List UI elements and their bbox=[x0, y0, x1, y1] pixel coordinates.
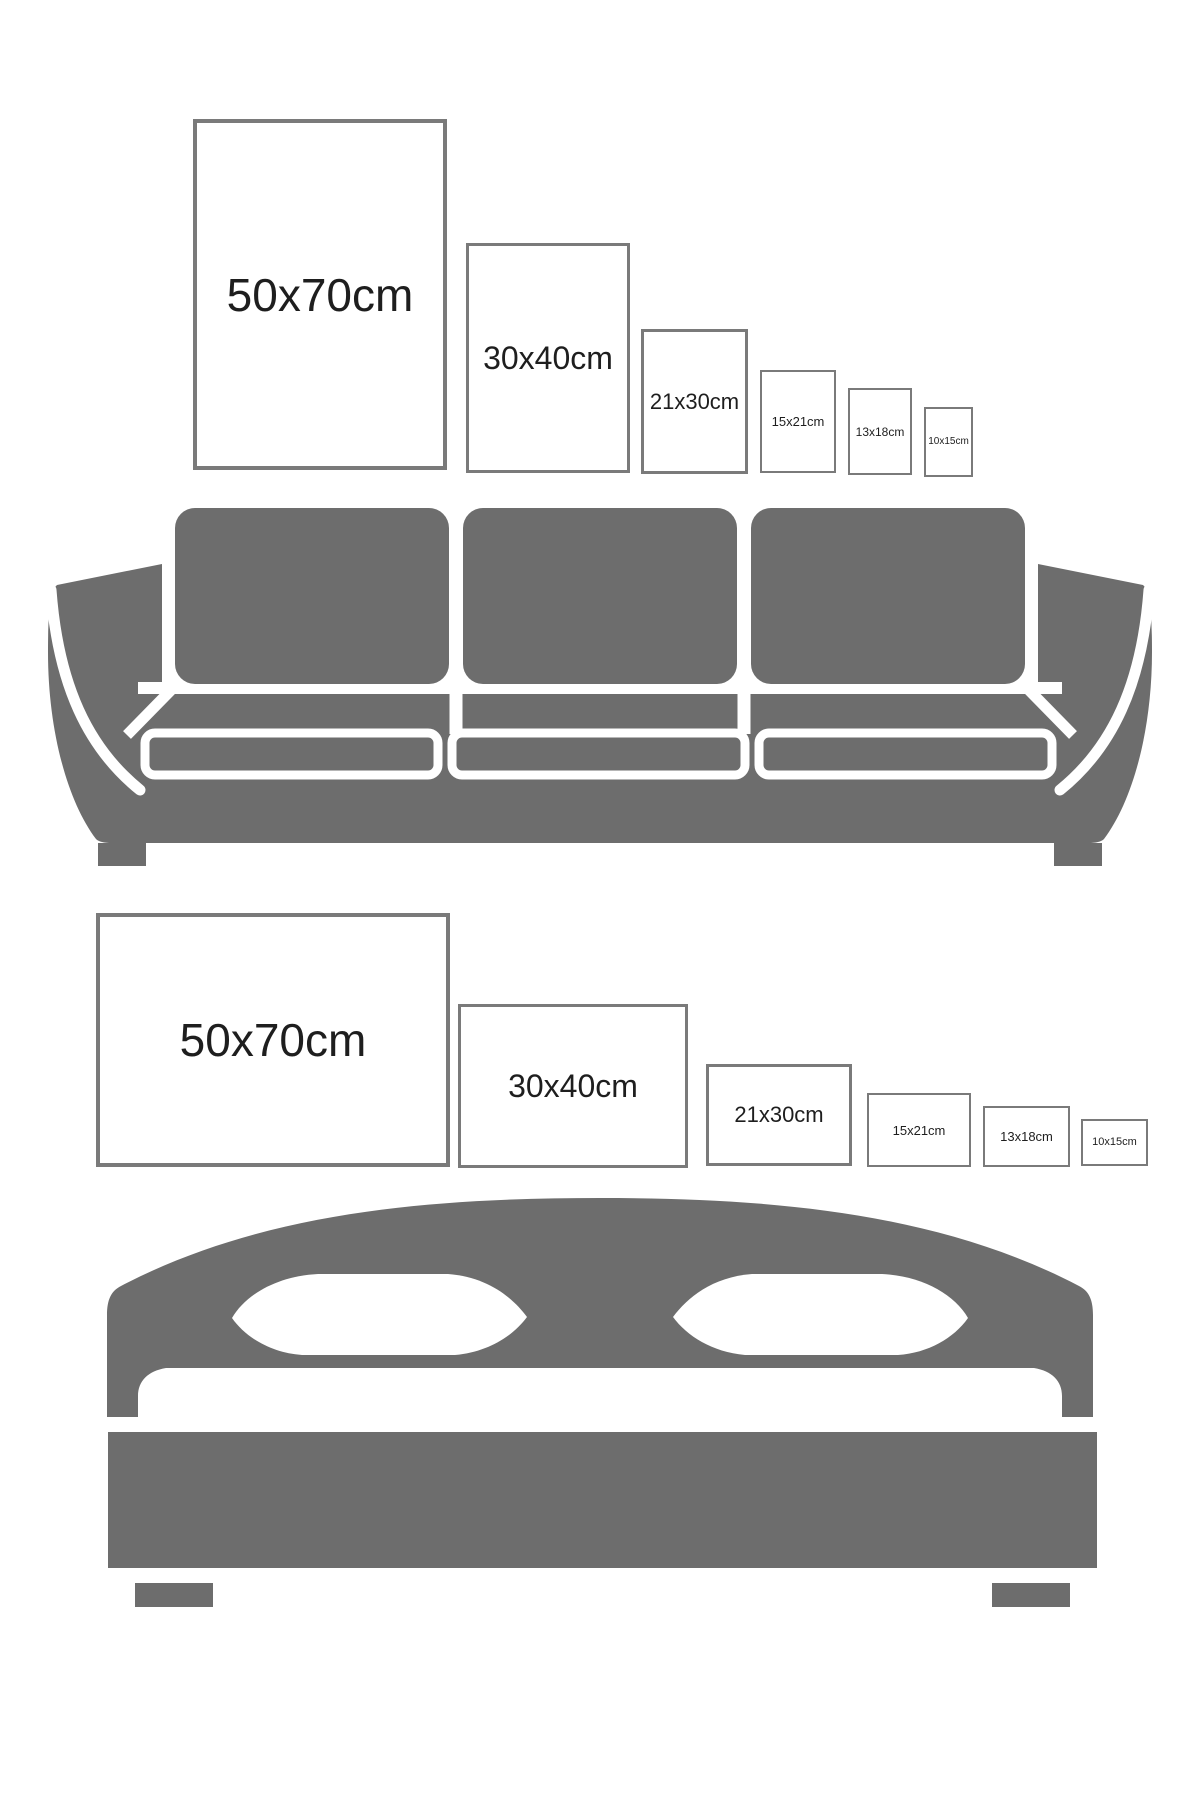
frame-landscape-13x18: 13x18cm bbox=[983, 1106, 1070, 1167]
bed-pillow bbox=[232, 1274, 527, 1355]
frame-size-label: 15x21cm bbox=[772, 415, 825, 428]
frame-landscape-10x15: 10x15cm bbox=[1081, 1119, 1148, 1166]
frame-size-label: 10x15cm bbox=[1092, 1137, 1137, 1148]
sofa-seat-cushion bbox=[759, 733, 1052, 775]
frame-portrait-10x15: 10x15cm bbox=[924, 407, 973, 477]
bed-icon bbox=[107, 1198, 1097, 1607]
frame-size-label: 21x30cm bbox=[734, 1104, 823, 1126]
sofa-back-cushion bbox=[463, 508, 737, 684]
frame-size-label: 50x70cm bbox=[227, 272, 414, 318]
frame-size-label: 15x21cm bbox=[893, 1124, 946, 1137]
frame-landscape-15x21: 15x21cm bbox=[867, 1093, 971, 1167]
bed-foot bbox=[992, 1583, 1070, 1607]
bed-pillow bbox=[673, 1274, 968, 1355]
frame-landscape-50x70: 50x70cm bbox=[96, 913, 450, 1167]
sofa-back-cushion bbox=[175, 508, 449, 684]
frame-size-label: 30x40cm bbox=[508, 1070, 638, 1102]
frame-size-label: 21x30cm bbox=[650, 391, 739, 413]
sofa-icon bbox=[48, 508, 1152, 866]
size-guide-infographic: 50x70cm 30x40cm 21x30cm 15x21cm 13x18cm … bbox=[0, 0, 1200, 1800]
frame-landscape-21x30: 21x30cm bbox=[706, 1064, 852, 1166]
frame-portrait-13x18: 13x18cm bbox=[848, 388, 912, 475]
sofa-foot bbox=[1054, 843, 1102, 866]
frame-size-label: 50x70cm bbox=[180, 1017, 367, 1063]
sofa-seat-cushion bbox=[452, 733, 745, 775]
frame-size-label: 13x18cm bbox=[856, 426, 905, 438]
frame-size-label: 30x40cm bbox=[483, 342, 613, 374]
sofa-foot bbox=[98, 843, 146, 866]
bed-foot bbox=[135, 1583, 213, 1607]
frame-landscape-30x40: 30x40cm bbox=[458, 1004, 688, 1168]
frame-size-label: 10x15cm bbox=[928, 437, 969, 447]
frame-size-label: 13x18cm bbox=[1000, 1130, 1053, 1143]
frame-portrait-21x30: 21x30cm bbox=[641, 329, 748, 474]
sofa-seat-cushion bbox=[145, 733, 438, 775]
sofa-back-cushion bbox=[751, 508, 1025, 684]
frame-portrait-50x70: 50x70cm bbox=[193, 119, 447, 470]
bed-base bbox=[108, 1432, 1097, 1568]
frame-portrait-15x21: 15x21cm bbox=[760, 370, 836, 473]
frame-portrait-30x40: 30x40cm bbox=[466, 243, 630, 473]
